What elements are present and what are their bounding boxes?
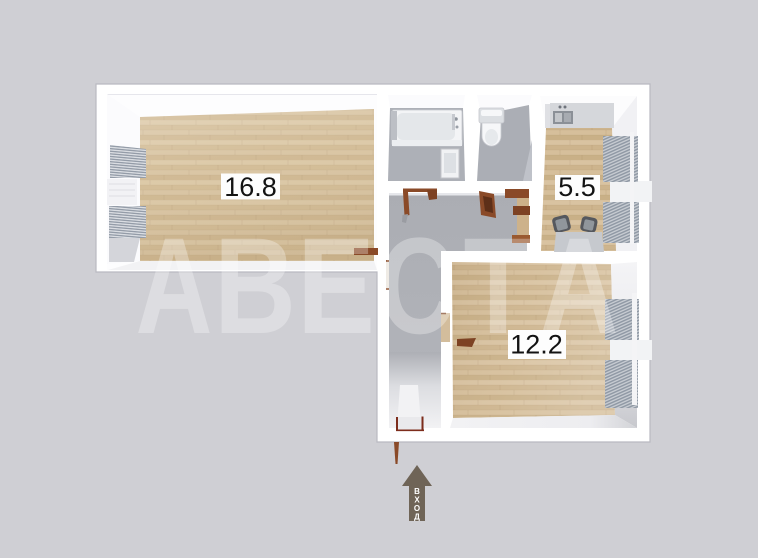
svg-text:12.2: 12.2 xyxy=(510,330,563,360)
svg-text:Е: Е xyxy=(297,210,375,363)
svg-text:16.8: 16.8 xyxy=(224,172,277,202)
svg-text:А: А xyxy=(136,210,213,363)
svg-text:5.5: 5.5 xyxy=(558,172,596,202)
svg-text:Д: Д xyxy=(414,513,420,522)
svg-text:С: С xyxy=(379,210,456,363)
svg-text:В: В xyxy=(214,210,296,363)
